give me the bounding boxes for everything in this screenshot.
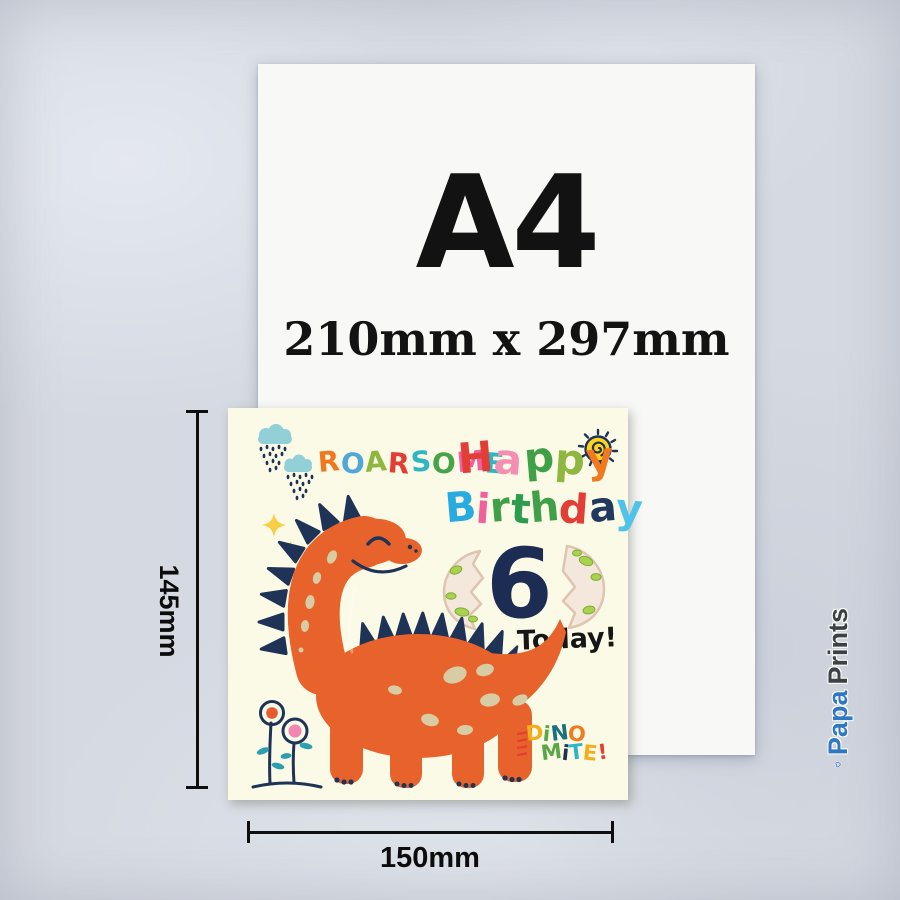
letter: p: [553, 434, 587, 485]
width-dimension-line: [248, 831, 613, 834]
letter: !: [597, 743, 609, 763]
letter: M: [540, 742, 563, 764]
dino-mite-line2: MiTE!: [541, 743, 607, 762]
brand-name-papa: Papa: [823, 691, 854, 756]
a4-size-title: A4: [258, 160, 755, 288]
width-dimension-cap-right: [611, 821, 614, 843]
card-width-label: 150mm: [350, 842, 510, 875]
card-height-label: 145mm: [154, 546, 184, 676]
birthday-card: ROARSOME Happy Birthday 6 Today!: [228, 408, 628, 800]
brand-name-prints: Prints: [823, 608, 854, 685]
letter: A: [364, 444, 389, 479]
letter: y: [615, 484, 645, 534]
happy-word: Happy: [458, 434, 614, 483]
letter: a: [492, 434, 525, 485]
letter: R: [387, 446, 412, 480]
a4-dimensions-label: 210mm x 297mm: [258, 312, 755, 366]
letter: S: [409, 444, 433, 479]
papa-prints-watermark: Papa Prints: [818, 608, 858, 768]
letter: y: [583, 432, 616, 483]
height-dimension-cap-top: [186, 410, 208, 413]
letter: R: [317, 444, 342, 479]
letter: p: [521, 432, 556, 484]
letter: E: [582, 744, 598, 765]
letter: O: [339, 446, 366, 481]
letter: O: [431, 446, 458, 481]
flowers-doodle: [250, 693, 324, 795]
height-dimension-line: [196, 410, 199, 789]
height-dimension-cap-bottom: [186, 786, 208, 789]
width-dimension-cap-left: [247, 821, 250, 843]
letter: H: [456, 432, 496, 484]
letter: a: [587, 482, 619, 532]
dino-mite-logo: DiNO MiTE!: [526, 724, 607, 763]
